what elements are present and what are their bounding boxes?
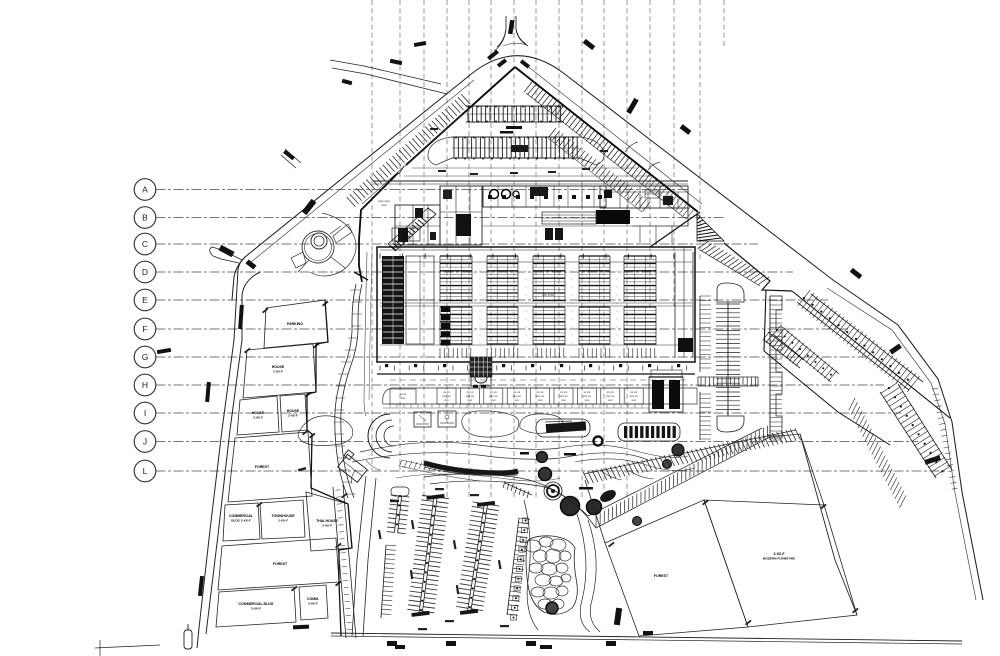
svg-text:xxx: xxx <box>608 398 613 402</box>
svg-text:FOREST: FOREST <box>273 562 288 566</box>
svg-text:2-XX-F: 2-XX-F <box>253 416 263 420</box>
svg-text:FOREST: FOREST <box>654 574 669 578</box>
svg-text:B: B <box>142 213 148 223</box>
svg-text:I: I <box>144 408 146 418</box>
svg-text:xxx: xxx <box>468 398 473 402</box>
svg-text:xxx: xxx <box>585 398 590 402</box>
svg-text:FOREST: FOREST <box>255 465 270 469</box>
svg-text:COMMERCIAL BLDG: COMMERCIAL BLDG <box>239 602 274 606</box>
svg-text:COMM.: COMM. <box>307 597 319 601</box>
svg-text:G: G <box>142 352 149 362</box>
svg-text:H: H <box>142 380 148 390</box>
svg-text:2-XX-F: 2-XX-F <box>308 602 318 606</box>
svg-text:2-XX-F: 2-XX-F <box>322 524 332 528</box>
svg-text:xxx xxxx: xxx xxxx <box>542 293 554 297</box>
svg-text:2-XX-F: 2-XX-F <box>278 519 288 523</box>
svg-text:PARKING: PARKING <box>287 322 303 326</box>
svg-text:L: L <box>143 466 148 476</box>
svg-text:xxx: xxx <box>514 398 519 402</box>
svg-text:TOWNHOUSE: TOWNHOUSE <box>271 514 295 518</box>
svg-text:2-XX-F: 2-XX-F <box>251 607 261 611</box>
svg-text:xxx: xxx <box>444 398 449 402</box>
svg-text:MODERN FURNITURE: MODERN FURNITURE <box>763 557 795 561</box>
svg-text:E: E <box>142 295 148 305</box>
svg-text:xxxx: xxxx <box>381 203 387 207</box>
svg-text:D: D <box>142 267 148 277</box>
svg-text:2-XX-F: 2-XX-F <box>273 370 283 374</box>
svg-text:xx xxx: xx xxx <box>662 372 670 376</box>
svg-text:C: C <box>142 239 148 249</box>
svg-text:xxx: xxx <box>538 398 543 402</box>
svg-text:HOUSE: HOUSE <box>287 409 300 413</box>
svg-text:HOUSE: HOUSE <box>272 365 285 369</box>
svg-text:BLDG 2-XX-F: BLDG 2-XX-F <box>231 519 251 523</box>
svg-text:THAI-HOUSE: THAI-HOUSE <box>316 519 338 523</box>
svg-text:A: A <box>142 185 148 195</box>
svg-text:xxx: xxx <box>401 396 406 400</box>
svg-text:2-XX-F: 2-XX-F <box>288 414 298 418</box>
svg-text:xxx: xxx <box>491 398 496 402</box>
svg-text:xxx: xxx <box>631 398 636 402</box>
svg-text:F: F <box>142 324 147 334</box>
svg-text:COMMERCIAL: COMMERCIAL <box>229 514 254 518</box>
svg-text:2-XX-F: 2-XX-F <box>773 552 785 556</box>
svg-text:HOUSE: HOUSE <box>252 411 265 415</box>
svg-text:xxx: xxx <box>561 398 566 402</box>
svg-text:J: J <box>143 437 147 447</box>
